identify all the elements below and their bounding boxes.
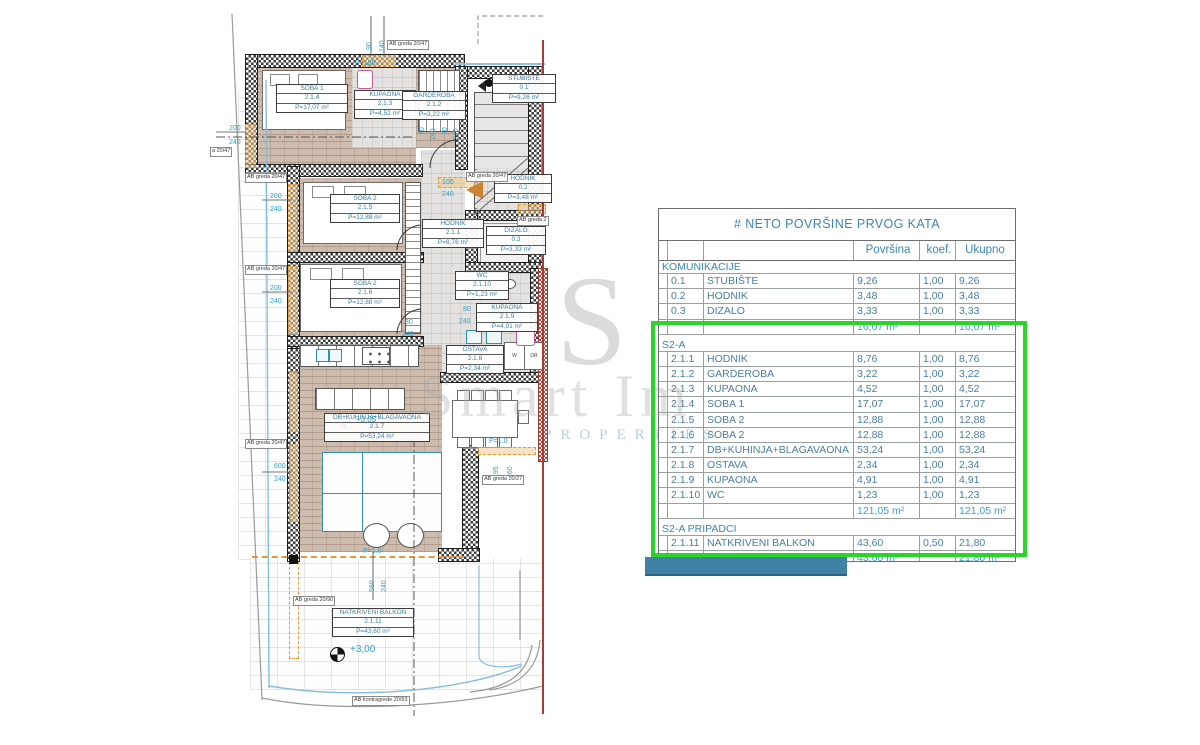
room-label-dnevni: DB+KUHINJA+BLAGAVAONA 2.1.7 P=53,24 m² bbox=[324, 413, 430, 442]
dim-label: 200 bbox=[229, 125, 241, 132]
level-marker-balkon bbox=[330, 647, 345, 662]
room-name: SOBA 2 bbox=[331, 280, 399, 288]
room-name: STUBIŠTE bbox=[493, 75, 555, 83]
room-label-hodnik211: HODNIK 2.1.1 P=8,76 m² bbox=[422, 219, 484, 248]
beam-tag: AB greda 20/47 bbox=[466, 172, 508, 182]
room-code: 0.3 bbox=[487, 235, 545, 244]
dim-label: 240 bbox=[274, 476, 286, 483]
room-area: P=3,33 m² bbox=[487, 245, 545, 254]
highlight-box bbox=[651, 321, 1027, 557]
room-name: NATKRIVENI BALKON bbox=[333, 609, 413, 617]
page: W DR bbox=[0, 0, 1200, 745]
room-area: P=1,23 m² bbox=[456, 290, 508, 299]
dim-label: 240 bbox=[229, 139, 241, 146]
room-area: P=17,07 m² bbox=[277, 103, 347, 112]
room-name: DB+KUHINJA+BLAGAVAONA bbox=[325, 414, 429, 422]
dim-label: 240 bbox=[453, 128, 460, 140]
beam-tag: AB greda 20/47 bbox=[387, 40, 429, 50]
room-code: 2.1.2 bbox=[403, 100, 465, 109]
dim-label: 240 bbox=[459, 318, 471, 325]
room-code: 2.1.10 bbox=[456, 280, 508, 289]
parapet-label: P=1.0 bbox=[363, 548, 382, 555]
room-area: P=12,88 m² bbox=[331, 213, 399, 222]
beam-tag: AB greda 2 bbox=[517, 216, 549, 226]
room-name: WC bbox=[456, 272, 508, 280]
room-name: SOBA 1 bbox=[277, 85, 347, 93]
dim-label: 240 bbox=[402, 331, 414, 338]
room-code: 2.1.4 bbox=[277, 93, 347, 102]
room-code: 2.1.9 bbox=[477, 312, 537, 321]
beam-tag-cut: a 20/47 bbox=[210, 147, 232, 157]
room-label-kupaona2: KUPAONA 2.1.9 P=4,91 m² bbox=[476, 303, 538, 332]
dim-label: 70 bbox=[419, 127, 426, 135]
dim-label: 240 bbox=[270, 298, 282, 305]
room-code: 0.2 bbox=[495, 183, 551, 192]
room-label-dizalo: DIZALO 0.3 P=3,33 m² bbox=[486, 226, 546, 255]
room-name: HODNIK bbox=[423, 220, 483, 228]
room-area: P=9,26 m² bbox=[493, 93, 555, 102]
blue-bar bbox=[645, 557, 847, 576]
dim-label: 100 bbox=[442, 179, 454, 186]
room-label-ostava: OSTAVA 2.1.8 P=2,34 m² bbox=[446, 345, 504, 374]
room-name: SOBA 2 bbox=[331, 195, 399, 203]
dim-label: 240 bbox=[270, 206, 282, 213]
dim-label: 240 bbox=[381, 580, 388, 592]
dim-label: 600 bbox=[274, 463, 286, 470]
dim-label: 240 bbox=[430, 128, 437, 140]
beam-tag: AB greda 20/47 bbox=[245, 439, 287, 449]
room-area: P=2,34 m² bbox=[447, 364, 503, 373]
beam-tag: AB greda 20/90 bbox=[293, 596, 335, 606]
room-code: 2.1.5 bbox=[331, 203, 399, 212]
room-label-wc: WC 2.1.10 P=1,23 m² bbox=[455, 271, 509, 300]
room-label-balkon: NATKRIVENI BALKON 2.1.11 P=43,60 m² bbox=[332, 608, 414, 637]
room-area: P=8,76 m² bbox=[423, 238, 483, 247]
room-code: 2.1.11 bbox=[333, 617, 413, 626]
room-label-soba2a: SOBA 2 2.1.5 P=12,88 m² bbox=[330, 194, 400, 223]
dim-label: P=100 bbox=[355, 60, 375, 67]
level-label-balkon: +3,00 bbox=[350, 645, 375, 655]
room-code: 0.1 bbox=[493, 83, 555, 92]
beam-tag: AB greda 20/47 bbox=[245, 265, 287, 275]
parapet-label: P=1.0 bbox=[489, 438, 508, 445]
dim-label: 80 bbox=[463, 306, 471, 313]
beam-tag: AB greda 20/47 bbox=[245, 173, 287, 183]
room-area: P=4,91 m² bbox=[477, 322, 537, 331]
room-code: 2.1.1 bbox=[423, 228, 483, 237]
dim-label: 140 bbox=[379, 40, 386, 52]
room-label-garderoba: GARDEROBA 2.1.2 P=3,22 m² bbox=[402, 91, 466, 120]
room-area: P=3,48 m² bbox=[495, 193, 551, 202]
room-area: P=3,22 m² bbox=[403, 110, 465, 119]
room-area: P=53,24 m² bbox=[325, 432, 429, 441]
room-code: 2.1.8 bbox=[447, 354, 503, 363]
room-label-soba1: SOBA 1 2.1.4 P=17,07 m² bbox=[276, 84, 348, 113]
dim-label: 200 bbox=[270, 193, 282, 200]
room-area: P=43,60 m² bbox=[333, 627, 413, 636]
dim-label: 80 bbox=[405, 319, 413, 326]
dim-label: 580 bbox=[369, 580, 376, 592]
room-area: P=12,88 m² bbox=[331, 298, 399, 307]
beam-tag: AB kontragrede 20/93 bbox=[352, 696, 410, 706]
dim-label: 240 bbox=[442, 191, 454, 198]
level-label-living: +3,05 bbox=[356, 416, 376, 424]
room-label-stubiste: STUBIŠTE 0.1 P=9,26 m² bbox=[492, 74, 556, 103]
beam-tag: AB greda 20/27 bbox=[482, 475, 524, 485]
room-label-soba2b: SOBA 2 2.1.6 P=12,88 m² bbox=[330, 279, 400, 308]
room-code: 2.1.7 bbox=[325, 422, 429, 431]
dim-label: 200 bbox=[270, 285, 282, 292]
room-name: DIZALO bbox=[487, 227, 545, 235]
room-name: GARDEROBA bbox=[403, 92, 465, 100]
room-name: OSTAVA bbox=[447, 346, 503, 354]
room-name: KUPAONA bbox=[477, 304, 537, 312]
dim-label: 70 bbox=[442, 127, 449, 135]
room-code: 2.1.6 bbox=[331, 288, 399, 297]
dim-label: 90 bbox=[366, 42, 373, 50]
